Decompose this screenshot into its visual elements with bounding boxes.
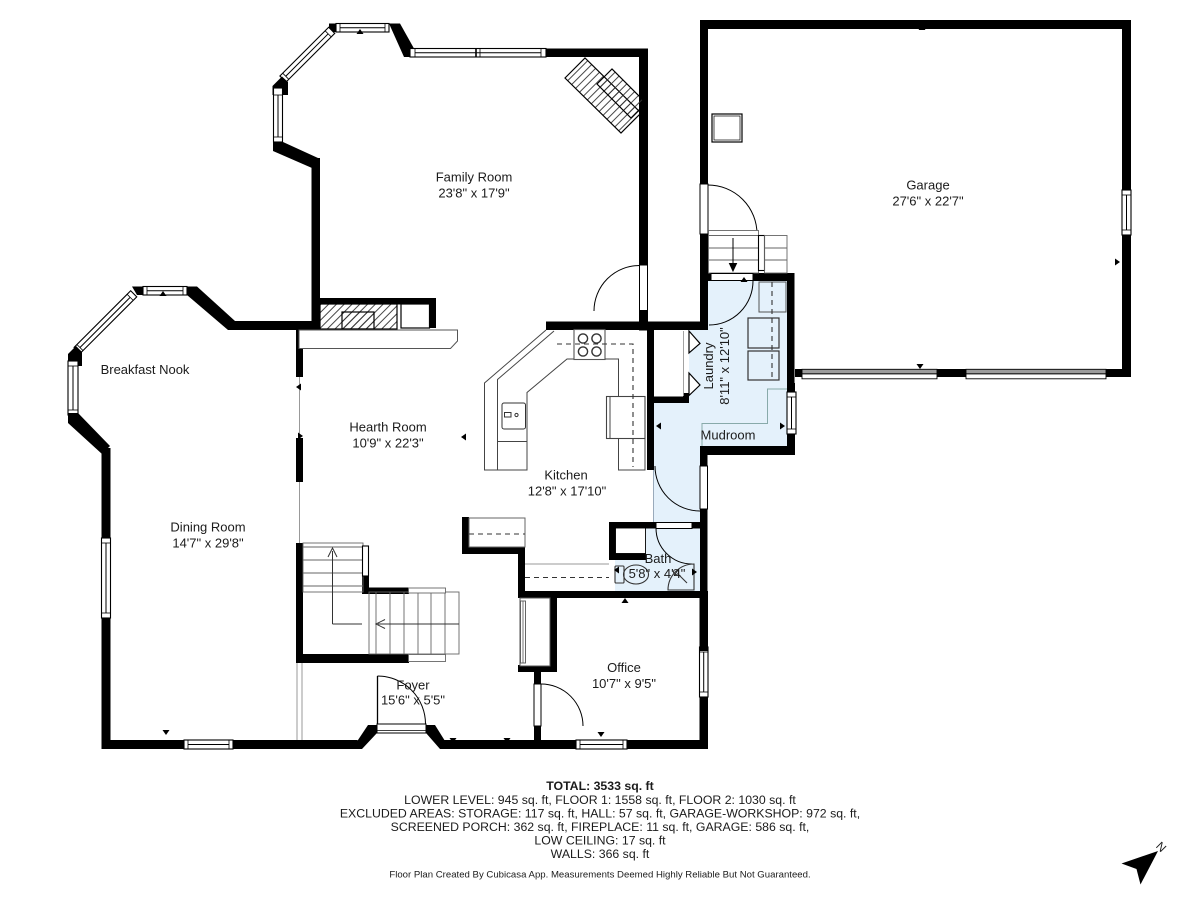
- svg-text:Office: Office: [607, 660, 641, 675]
- svg-text:TOTAL: 3533 sq. ft: TOTAL: 3533 sq. ft: [546, 779, 654, 793]
- svg-text:LOW CEILING: 17 sq. ft: LOW CEILING: 17 sq. ft: [534, 834, 666, 848]
- svg-text:Breakfast Nook: Breakfast Nook: [101, 362, 190, 377]
- svg-text:WALLS: 366 sq. ft: WALLS: 366 sq. ft: [551, 847, 650, 861]
- svg-text:8'11" x 12'10": 8'11" x 12'10": [717, 327, 732, 405]
- svg-text:10'9" x 22'3": 10'9" x 22'3": [352, 436, 424, 451]
- svg-text:5'8" x 4'4": 5'8" x 4'4": [629, 566, 686, 581]
- svg-text:SCREENED PORCH: 362 sq. ft, FI: SCREENED PORCH: 362 sq. ft, FIREPLACE: 1…: [391, 820, 810, 834]
- svg-text:Family Room: Family Room: [436, 170, 513, 185]
- svg-text:12'8" x 17'10": 12'8" x 17'10": [528, 484, 607, 499]
- svg-text:14'7" x 29'8": 14'7" x 29'8": [172, 536, 244, 551]
- svg-text:Garage: Garage: [906, 178, 949, 193]
- svg-text:Dining Room: Dining Room: [170, 520, 245, 535]
- svg-text:23'8" x 17'9": 23'8" x 17'9": [438, 186, 510, 201]
- svg-text:Hearth Room: Hearth Room: [349, 420, 426, 435]
- svg-text:Kitchen: Kitchen: [544, 468, 587, 483]
- svg-text:Foyer: Foyer: [396, 678, 430, 693]
- svg-text:Mudroom: Mudroom: [701, 428, 756, 443]
- svg-text:Floor Plan Created By Cubicasa: Floor Plan Created By Cubicasa App. Meas…: [389, 870, 810, 881]
- svg-text:Laundry: Laundry: [701, 342, 716, 389]
- svg-text:LOWER LEVEL: 945 sq. ft, FLOOR: LOWER LEVEL: 945 sq. ft, FLOOR 1: 1558 s…: [404, 793, 796, 807]
- svg-text:27'6" x 22'7": 27'6" x 22'7": [892, 194, 964, 209]
- svg-text:10'7" x 9'5": 10'7" x 9'5": [592, 676, 656, 691]
- svg-text:15'6" x 5'5": 15'6" x 5'5": [381, 693, 445, 708]
- svg-text:EXCLUDED AREAS: STORAGE: 117 s: EXCLUDED AREAS: STORAGE: 117 sq. ft, HAL…: [340, 807, 860, 821]
- svg-text:Bath: Bath: [645, 551, 672, 566]
